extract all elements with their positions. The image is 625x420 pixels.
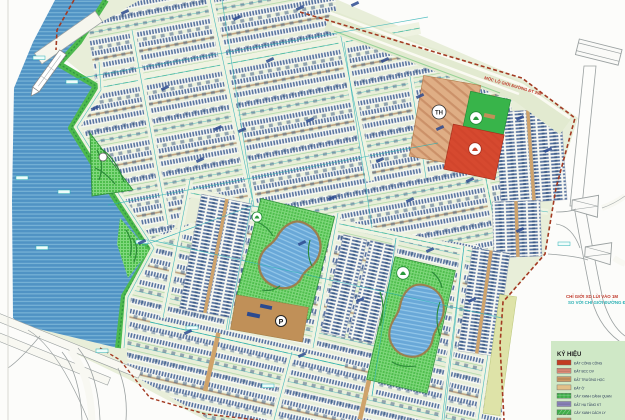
svg-text:CÂY XANH CẢNH QUAN: CÂY XANH CẢNH QUAN	[574, 394, 612, 399]
svg-text:ĐẤT TRƯỜNG HỌC: ĐẤT TRƯỜNG HỌC	[574, 377, 605, 382]
svg-text:P: P	[279, 319, 284, 326]
svg-text:CÂY XANH CÁCH LY: CÂY XANH CÁCH LY	[574, 411, 607, 415]
svg-text:ĐẤT Ở: ĐẤT Ở	[574, 385, 584, 390]
svg-text:ĐẤT CÔNG CỘNG: ĐẤT CÔNG CỘNG	[574, 360, 603, 365]
svg-text:SO VỚI CHỈ GIỚI ĐƯỜNG ĐỎ: SO VỚI CHỈ GIỚI ĐƯỜNG ĐỎ	[568, 300, 625, 305]
svg-text:ĐẤT HẠ TẦNG KT: ĐẤT HẠ TẦNG KT	[574, 403, 601, 407]
svg-text:KÝ HIỆU: KÝ HIỆU	[557, 350, 581, 358]
svg-text:CHỈ GIỚI XD LÙI VÀO 1M: CHỈ GIỚI XD LÙI VÀO 1M	[566, 294, 618, 299]
svg-text:TH: TH	[435, 111, 443, 117]
svg-text:ĐẤT BCC DV: ĐẤT BCC DV	[574, 370, 595, 374]
